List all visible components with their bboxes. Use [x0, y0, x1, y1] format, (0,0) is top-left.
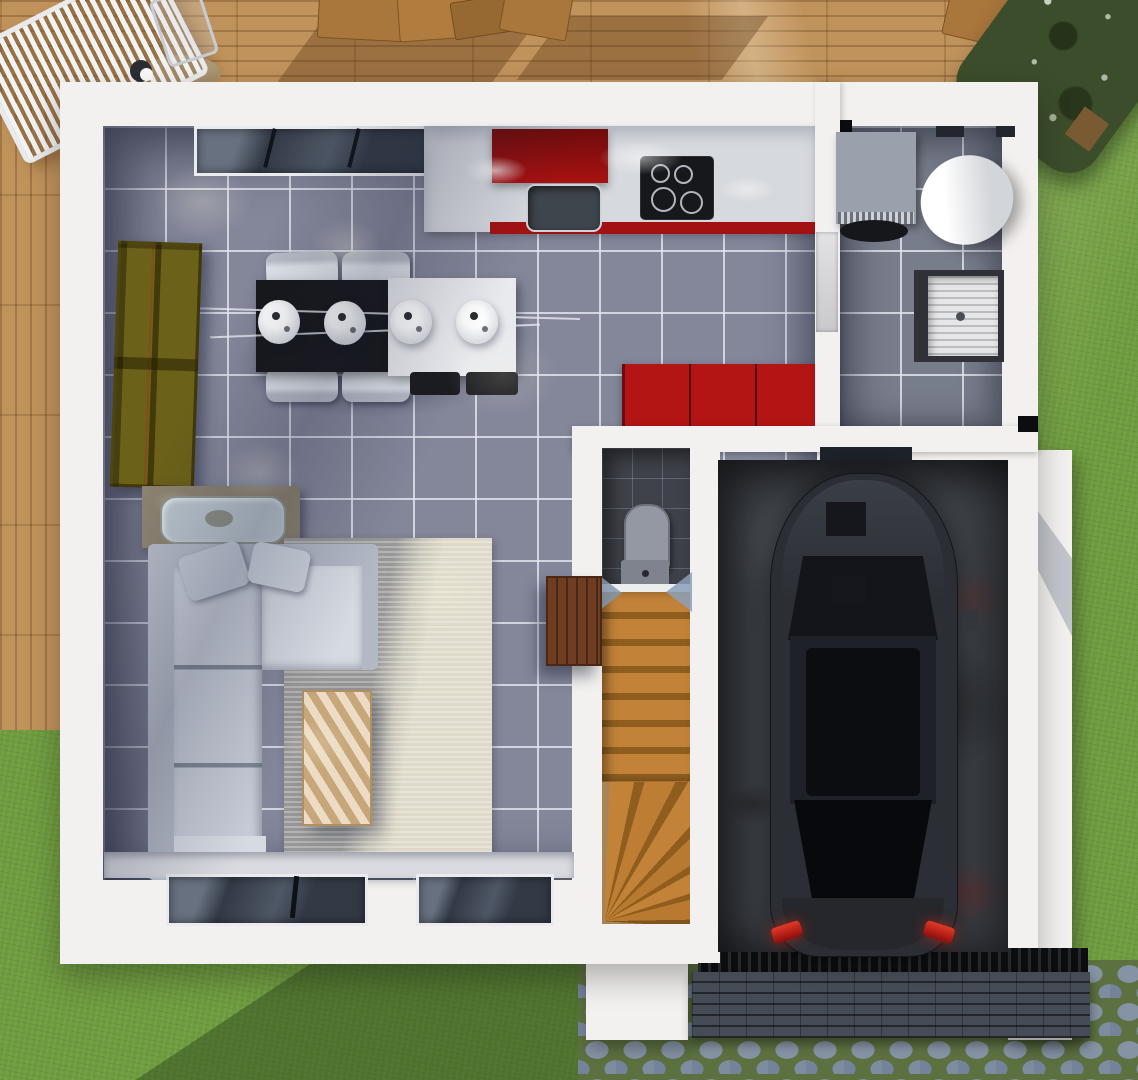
lounge-chair-knob — [140, 68, 153, 81]
staircase-winder-steps — [602, 782, 690, 924]
olive-bookshelf — [110, 241, 203, 490]
washing-machine — [836, 132, 916, 224]
pendant-lamp-socket — [470, 312, 478, 320]
staircase-straight-flight — [602, 592, 690, 782]
pendant-lamp-joint — [416, 326, 422, 332]
door-swing-marker — [666, 572, 692, 612]
dining-top-window — [194, 126, 440, 176]
toilet-flush-button — [642, 570, 649, 577]
patio-table — [317, 0, 407, 42]
sofa-backrest — [148, 544, 174, 880]
pine-coffee-table — [302, 690, 372, 826]
pendant-lamp-joint — [284, 326, 290, 332]
pendant-lamp — [456, 300, 498, 344]
wood-deck-left-strip — [0, 84, 62, 730]
cooktop-burner — [651, 187, 676, 212]
sofa-seat-cushions — [174, 566, 262, 862]
living-bottom-window — [166, 874, 368, 926]
red-range-hood-cabinet — [492, 129, 608, 183]
pendant-lamp-socket — [338, 313, 346, 321]
car-sunroof — [806, 648, 920, 796]
dining-stool — [466, 372, 518, 395]
car-hood-scoop — [826, 502, 866, 536]
sofa-armrest — [362, 544, 378, 670]
car-rear-window — [794, 800, 932, 906]
red-bench-cabinet — [622, 364, 825, 428]
pendant-lamp — [324, 301, 366, 345]
laundry-sink-drain — [956, 312, 965, 321]
pendant-lamp — [390, 300, 432, 344]
cooktop-burner — [651, 164, 670, 183]
washing-machine-drum — [840, 220, 908, 242]
storage-cabinet — [546, 576, 602, 666]
dining-chair — [266, 368, 338, 402]
stairwell-outer-wall — [586, 958, 688, 1040]
utility-slot-window — [996, 126, 1015, 137]
pendant-lamp — [258, 300, 300, 344]
cooktop-burner — [680, 191, 703, 214]
pendant-lamp-socket — [272, 312, 280, 320]
garage-slit-window — [820, 447, 912, 461]
pendant-lamp-socket — [404, 312, 412, 320]
brick-garage-apron — [692, 972, 1090, 1038]
car-hood-scoop — [832, 577, 866, 603]
garage-wall-vent — [1018, 416, 1038, 432]
induction-cooktop — [640, 156, 714, 220]
pendant-lamp-joint — [350, 327, 356, 333]
stairwell-left-wall — [572, 428, 602, 963]
cooktop-burner — [674, 165, 693, 184]
kitchen-sink — [526, 184, 602, 232]
utility-slot-window — [936, 126, 964, 137]
tray-bowl — [205, 510, 233, 527]
stairwell-right-wall — [690, 428, 720, 963]
door-swing-marker — [600, 576, 622, 610]
dining-stool — [410, 372, 460, 395]
pendant-lamp-joint — [482, 326, 488, 332]
kitchen-counter — [424, 126, 818, 232]
floor-plan-render — [0, 0, 1138, 1080]
living-bottom-window — [416, 874, 554, 926]
utility-door — [816, 232, 838, 332]
